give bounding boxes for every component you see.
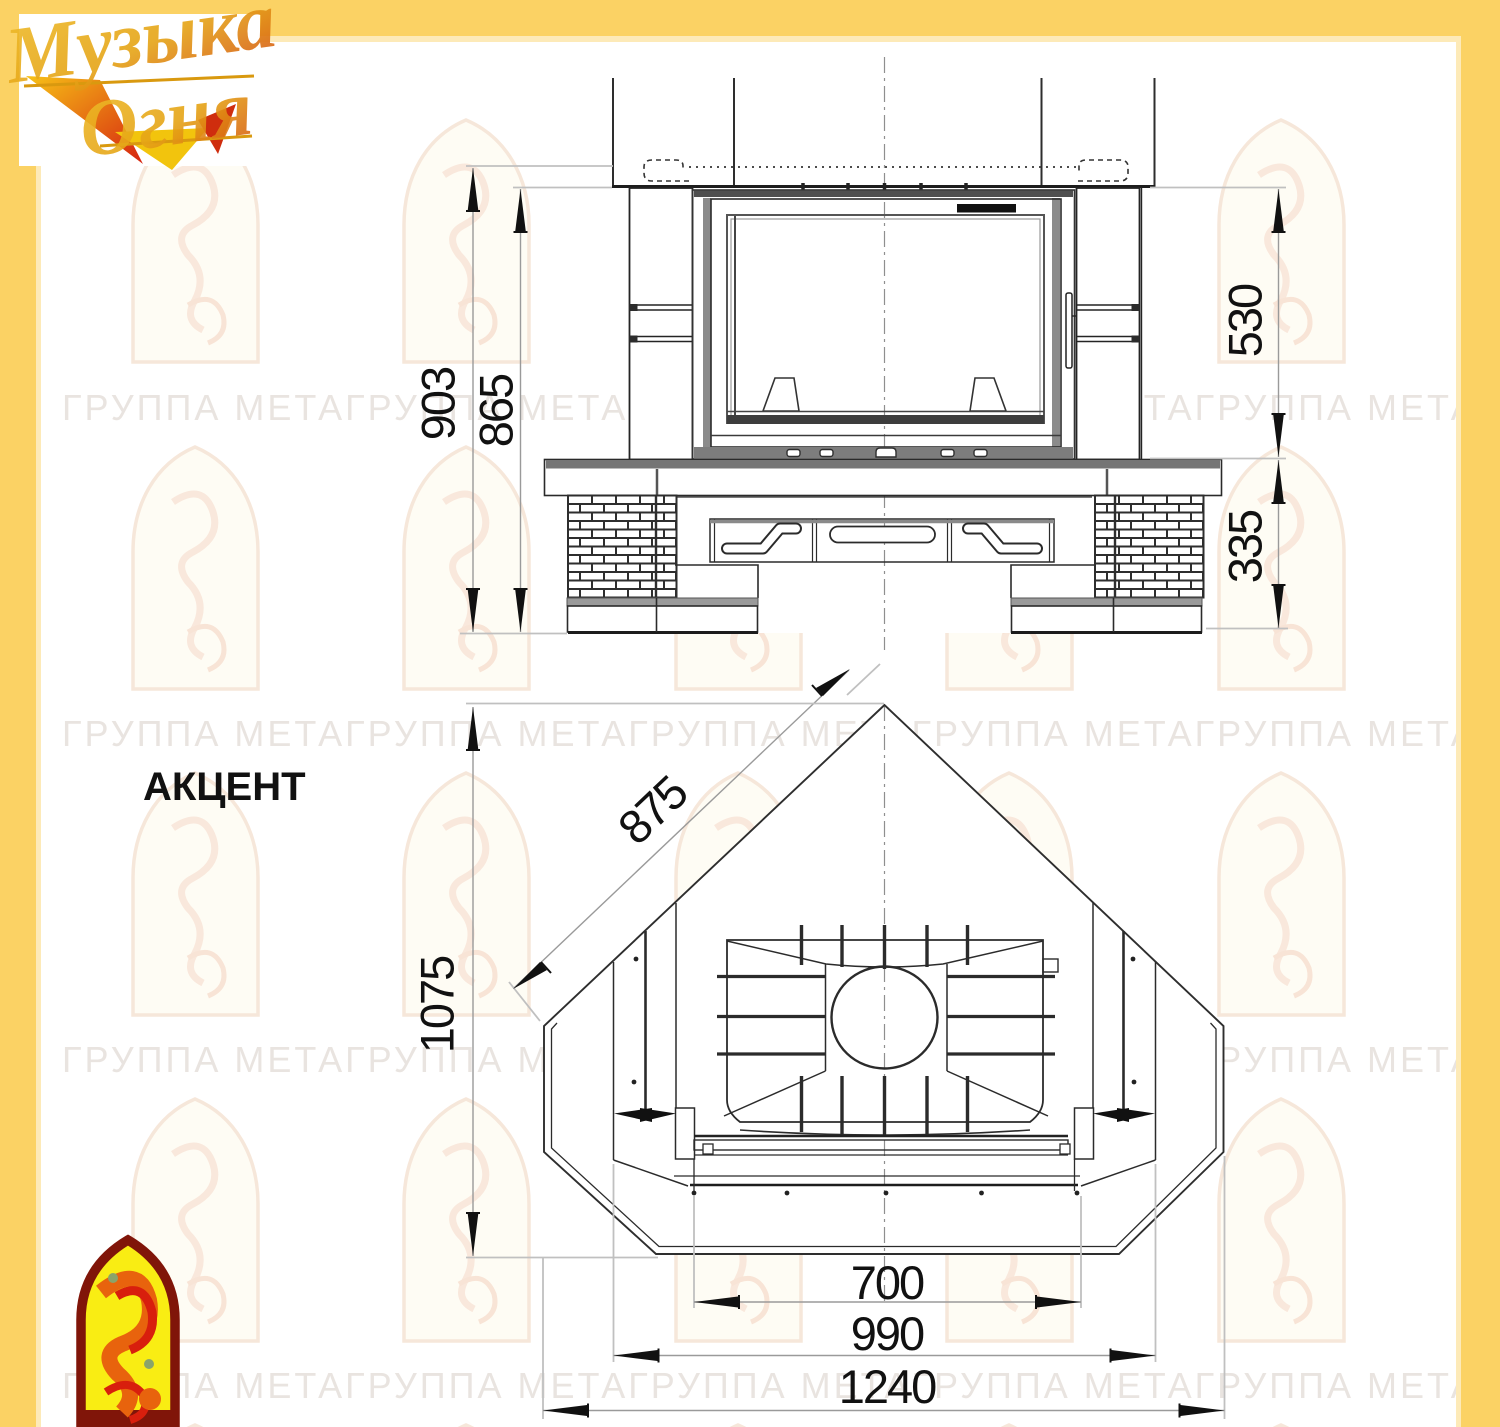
svg-text:700: 700 xyxy=(851,1256,924,1309)
svg-text:ГРУППА МЕТАГРУППА МЕТАГРУППА М: ГРУППА МЕТАГРУППА МЕТАГРУППА МЕТАГРУППА … xyxy=(62,1365,1478,1406)
svg-text:335: 335 xyxy=(1218,510,1271,583)
svg-text:530: 530 xyxy=(1218,284,1271,357)
svg-text:903: 903 xyxy=(411,367,464,440)
svg-text:АКЦЕНТ: АКЦЕНТ xyxy=(143,765,306,809)
svg-text:1240: 1240 xyxy=(839,1360,936,1413)
svg-text:1075: 1075 xyxy=(410,956,463,1053)
svg-text:990: 990 xyxy=(851,1307,924,1360)
svg-text:865: 865 xyxy=(469,374,522,447)
svg-text:ГРУППА МЕТАГРУППА МЕТАГРУППА М: ГРУППА МЕТАГРУППА МЕТАГРУППА МЕТАГРУППА … xyxy=(62,713,1478,754)
